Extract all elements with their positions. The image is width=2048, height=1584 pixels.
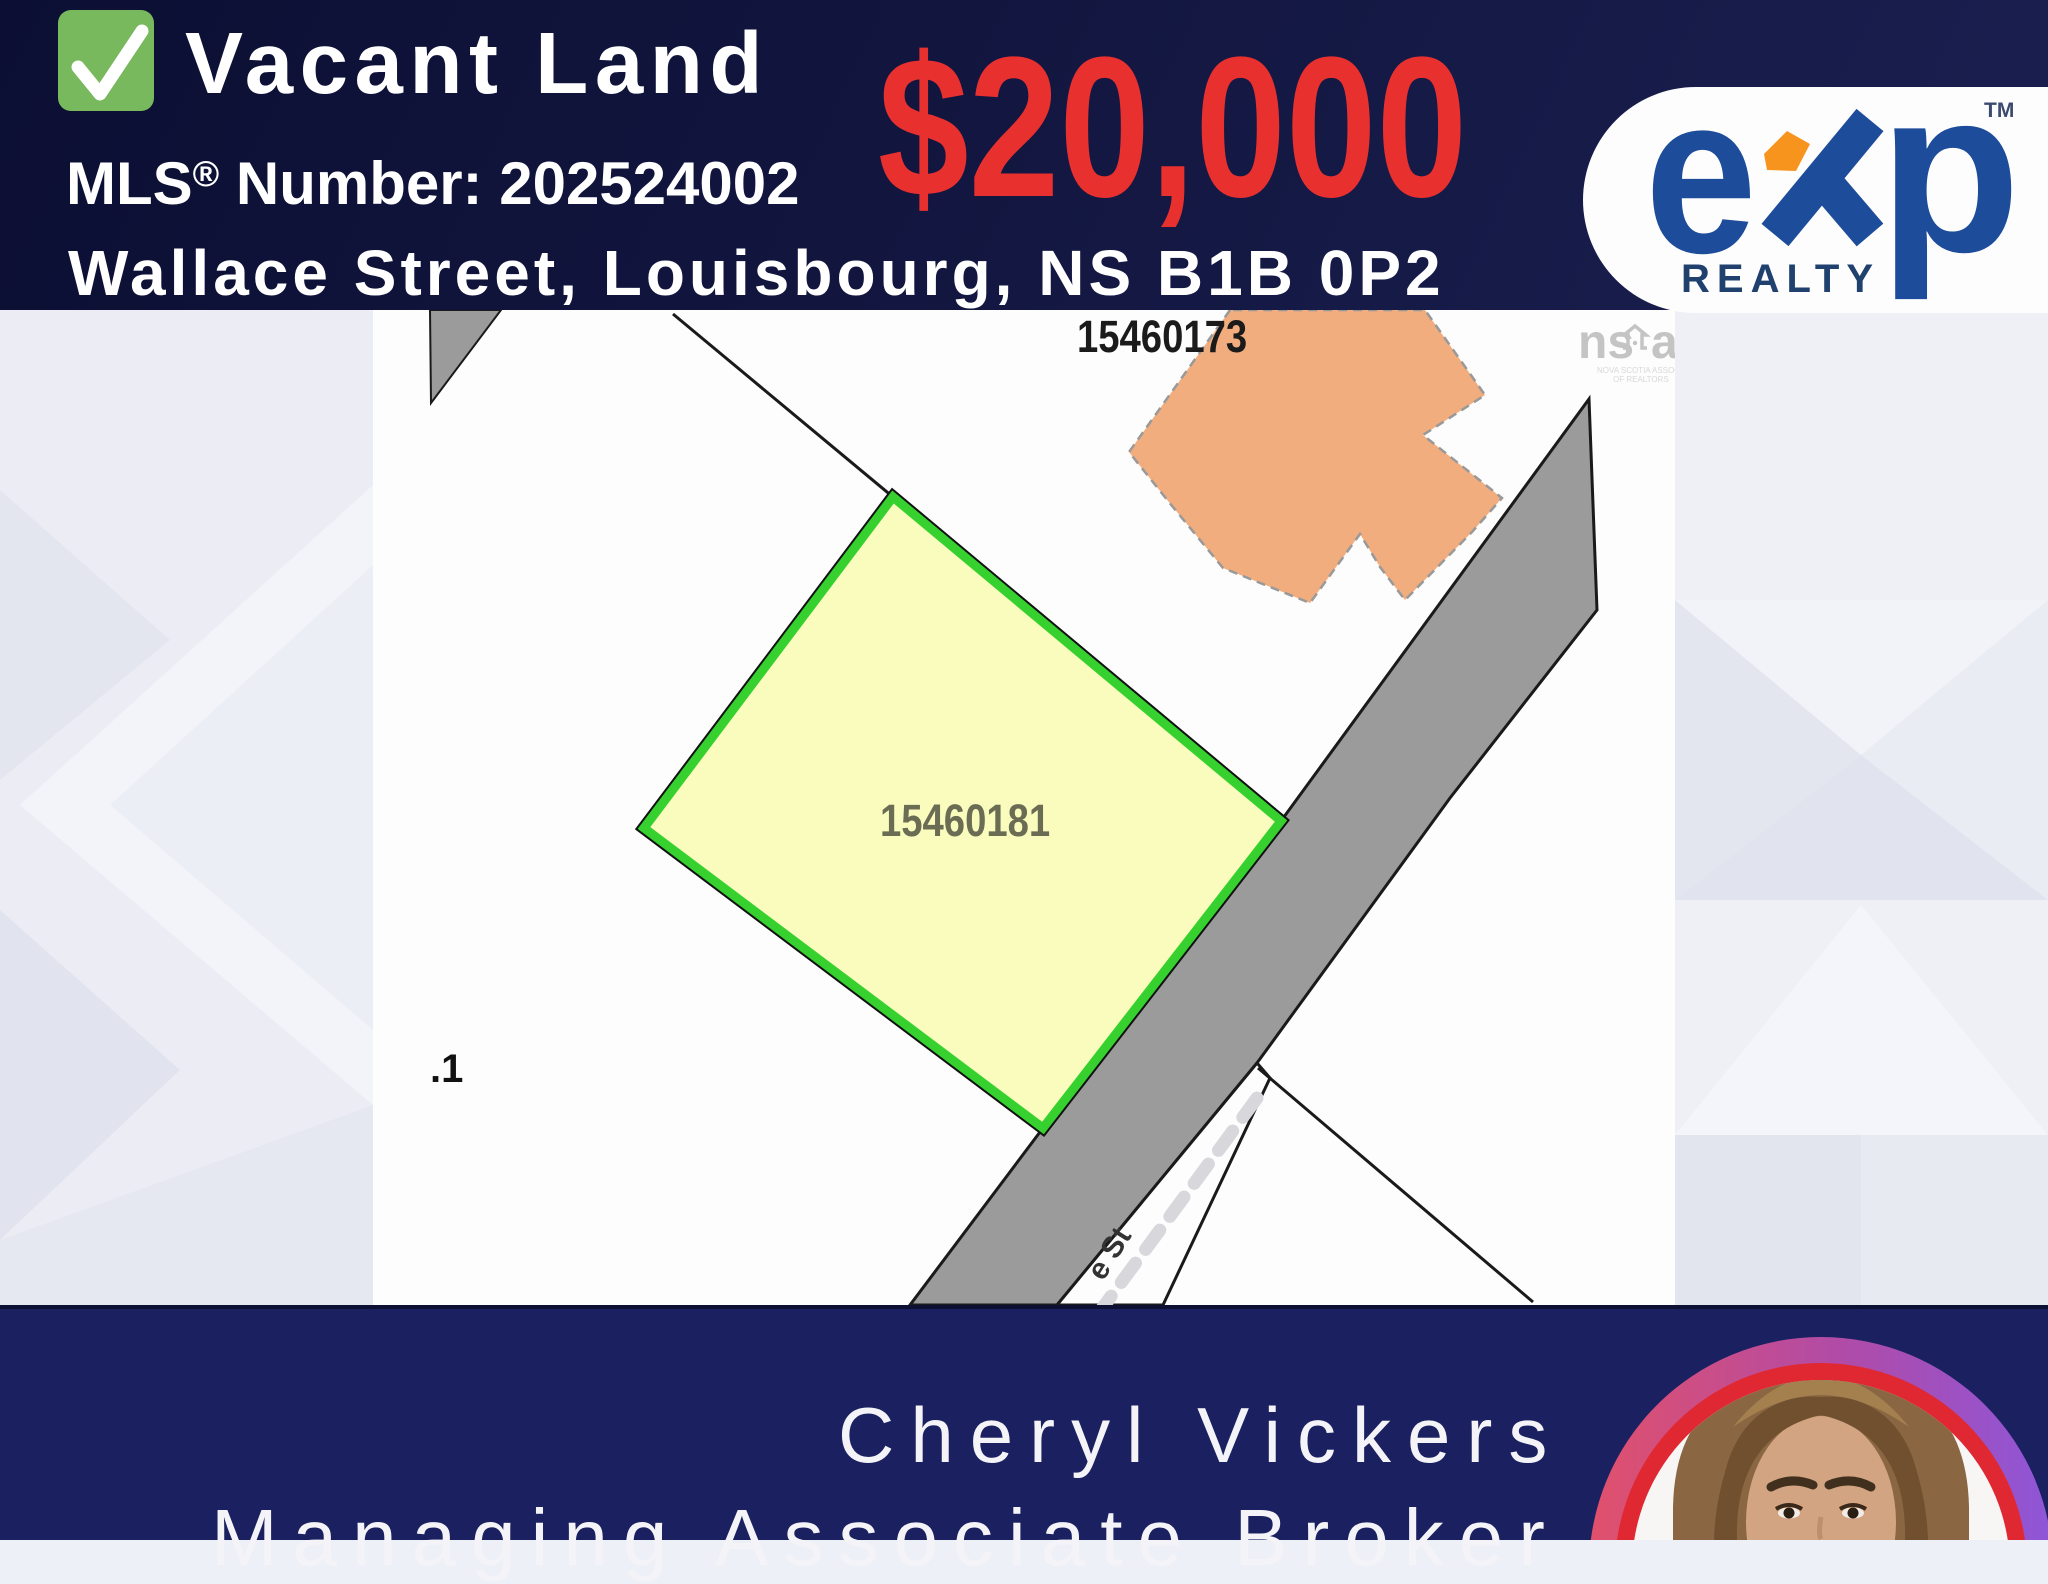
svg-text:.1: .1 [430, 1047, 463, 1091]
svg-text:OF REALTORS: OF REALTORS [1613, 375, 1669, 384]
svg-text:ar: ar [1651, 316, 1675, 369]
svg-text:15460181: 15460181 [880, 795, 1050, 846]
svg-text:NOVA SCOTIA ASSOCIATION: NOVA SCOTIA ASSOCIATION [1597, 366, 1675, 375]
svg-text:15460173: 15460173 [1077, 311, 1247, 362]
svg-text:ns: ns [1578, 316, 1634, 369]
svg-text:REALTY: REALTY [1681, 257, 1880, 301]
svg-text:TM: TM [1984, 99, 2014, 122]
